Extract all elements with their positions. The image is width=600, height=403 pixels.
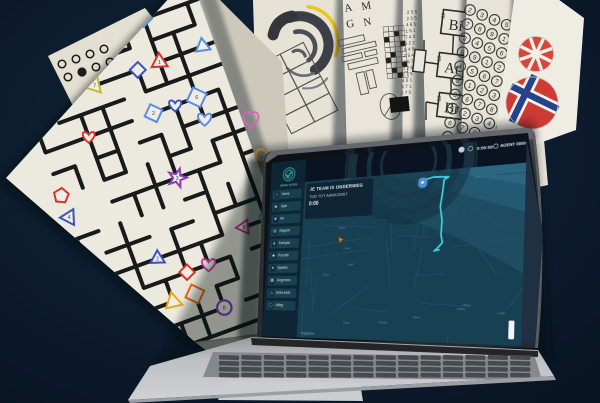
svg-text:Weg: Weg: [463, 302, 471, 308]
svg-text:3: 3: [176, 176, 179, 182]
svg-text:Laan: Laan: [347, 261, 355, 266]
svg-text:4: 4: [68, 215, 71, 221]
svg-text:2: 2: [152, 111, 155, 117]
svg-text:1 5 1: 1 5 1: [405, 28, 416, 34]
svg-text:2 7 5: 2 7 5: [401, 90, 412, 96]
svg-text:5 2 2: 5 2 2: [404, 40, 415, 46]
svg-text:Plein: Plein: [413, 314, 421, 320]
svg-text:4 6 7: 4 6 7: [403, 59, 414, 65]
svg-text:83: 83: [440, 12, 447, 18]
svg-text:7 4 3: 7 4 3: [405, 34, 416, 40]
svg-text:Dorp: Dorp: [339, 225, 346, 230]
svg-text:CRIME SCENE: CRIME SCENE: [280, 183, 298, 188]
svg-text:6 7 1: 6 7 1: [401, 83, 412, 89]
svg-text:6 4 5: 6 4 5: [404, 46, 415, 52]
svg-text:Laan: Laan: [475, 173, 484, 179]
svg-text:Dorp: Dorp: [343, 320, 351, 325]
svg-text:85: 85: [436, 55, 443, 61]
svg-text:Straat: Straat: [378, 319, 387, 325]
svg-text:6: 6: [195, 95, 198, 101]
svg-text:1: 1: [158, 60, 161, 66]
svg-text:2: 2: [156, 256, 159, 262]
svg-text:4 6 1: 4 6 1: [402, 77, 413, 83]
svg-text:Dorp: Dorp: [323, 272, 330, 277]
svg-text:AGENT 0000: AGENT 0000: [500, 140, 526, 148]
svg-text:2 7 5: 2 7 5: [402, 71, 413, 77]
svg-text:7: 7: [93, 83, 96, 89]
svg-text:Laan: Laan: [344, 245, 352, 250]
svg-text:Laan: Laan: [497, 310, 507, 316]
svg-text:0:00:00: 0:00:00: [477, 144, 493, 151]
svg-text:7 5 4: 7 5 4: [404, 52, 415, 58]
svg-text:mapbox: mapbox: [301, 331, 315, 337]
svg-text:2 2 6: 2 2 6: [403, 65, 414, 71]
svg-text:35: 35: [436, 95, 443, 101]
